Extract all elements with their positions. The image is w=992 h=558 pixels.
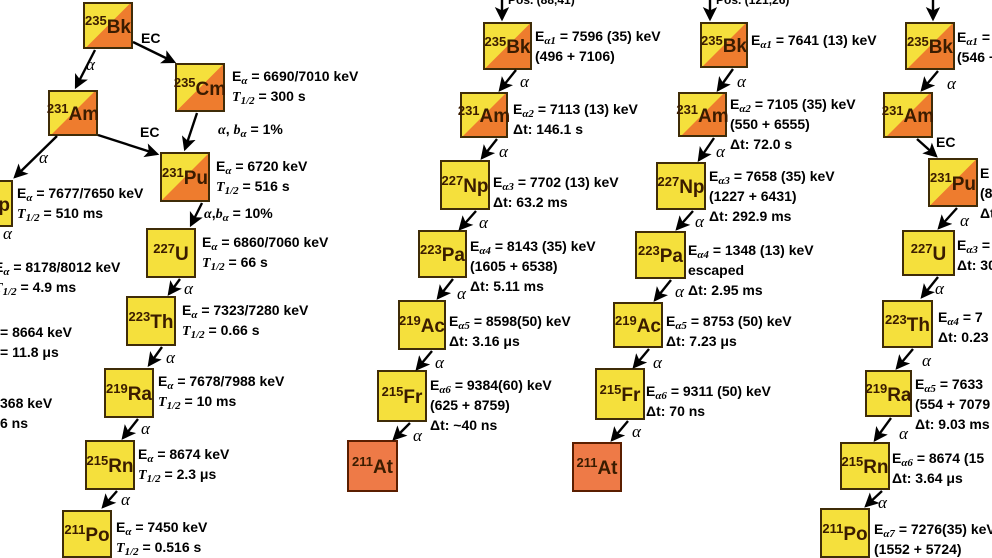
arrow-ac-fr-c2 [417,351,432,369]
label-219ac-left-partial: = 8664 keV= 11.8 μs [0,322,72,362]
mass-number: 227 [657,174,679,189]
arrow-am-np-c2 [482,139,497,158]
arrow-ra-rn-c4 [875,418,891,440]
label-line: (1552 + 5724) [874,539,992,558]
label-223th-c1: Eα = 7323/7280 keVT1/2 = 0.66 s [182,300,308,340]
label-line: Eα = 6690/7010 keV [232,66,358,86]
alpha-label-np-left: α [3,224,12,244]
element-symbol: Np [0,195,10,217]
element-symbol: Am [904,106,935,128]
mass-number: 215 [382,384,404,399]
label-line: Eα = 6860/7060 keV [202,232,328,252]
ec-label-am-pu-c4: EC [936,134,955,150]
element-symbol: Bk [506,37,530,59]
label-line: Eα7 = 7276(35) keV [874,519,992,539]
label-line: (546 + [957,47,992,67]
element-symbol: Rn [108,456,133,478]
arrow-am-pu-c4 [917,139,936,156]
label-227u-c4-partial: Eα3 =Δt: 30 [957,235,992,275]
nuclide-215rn-c4: 215Rn [840,442,890,490]
mass-number: 231 [882,103,904,118]
arrow-pa-ac-c3 [655,280,671,300]
label-227u-c1: Eα = 6860/7060 keVT1/2 = 66 s [202,232,328,272]
label-line: T1/2 = 66 s [202,252,328,272]
decay-chain-diagram: 235Bk235Cm231Am231Pu227U223Th219Ra215Rn2… [0,0,992,558]
element-symbol: Bk [929,37,953,59]
alpha-label-3-c2: α [479,213,488,233]
label-line: (496 + 7106) [535,46,661,66]
label-line: E [980,163,992,183]
label-line: Eα = 7677/7650 keV [17,183,143,203]
element-symbol: Np [679,177,704,199]
alpha-label-ra-rn-c1: α [141,419,150,439]
label-215fr-c3: Eα6 = 9311 (50) keVΔt: 70 ns [646,381,771,421]
nuclide-219ra-c4: 219Ra [865,370,912,417]
arrow-ra-rn-c1 [123,419,138,438]
label-line: Δt: 5.11 ms [470,276,596,296]
label-line: Eα = 8178/8012 keV [0,257,120,277]
label-line: (1605 + 6538) [470,256,596,276]
element-symbol: At [373,457,393,479]
arrow-pu-u-c1 [191,203,202,225]
arrow-pa-ac-c2 [438,279,453,298]
mass-number: 231 [676,102,698,117]
label-231pu-c4-partial: E(8Δt [980,163,992,223]
alpha-label-1-c3: α [737,72,746,92]
label-215fr-c2: Eα6 = 9384(60) keV(625 + 8759)Δt: ~40 ns [430,375,552,435]
label-235bk-c2: Eα1 = 7596 (35) keV(496 + 7106) [535,26,661,66]
mass-number: 231 [458,103,480,118]
element-symbol: Cm [196,79,227,101]
label-line: Δt: 7.23 μs [666,331,792,351]
label-215rn-c1: Eα = 8674 keVT1/2 = 2.3 μs [138,444,229,484]
alpha-label-4-c3: α [675,282,684,302]
mass-number: 219 [106,381,128,396]
mass-number: 211 [576,455,597,470]
label-219ac-c3: Eα5 = 8753 (50) keVΔt: 7.23 μs [666,311,792,351]
mass-number: 231 [47,101,69,116]
element-symbol: Pu [184,168,208,190]
mass-number: 231 [930,170,952,185]
arrow-fr-at-c2 [394,423,410,439]
nuclide-219ra-c1: 219Ra [104,368,154,418]
fragment-pos-c3: Pos. (121,26) [716,0,789,7]
mass-number: 235 [85,13,107,28]
label-line: Eα6 = 8674 (15 [892,448,984,468]
element-symbol: Ra [887,385,911,407]
nuclide-235bk-c3: 235Bk [700,22,748,68]
mass-number: 227 [153,241,175,256]
label-231am-c2: Eα2 = 7113 (13) keVΔt: 146.1 s [513,99,638,139]
branch-label-cm-pu-c1: α, bα = 1% [218,121,283,140]
element-symbol: Bk [107,17,131,39]
alpha-label-u-th-c4: α [935,279,944,299]
nuclide-231am-c3: 231Am [678,92,727,137]
arrow-np-pa-c3 [677,211,693,229]
element-symbol: At [597,458,617,480]
nuclide-223th-c1: 223Th [126,296,176,346]
label-line: Eα = 6720 keV [216,156,307,176]
arrow-bk-am-c4 [922,71,938,90]
label-line: Δt: 2.95 ms [688,280,814,300]
mass-number: 219 [399,313,421,328]
label-line: Eα3 = 7702 (13) keV [493,172,619,192]
label-line: Eα5 = 7633 [915,374,990,394]
arrow-cm-pu-c1 [185,113,197,149]
label-line: Δt: 72.0 s [730,134,856,154]
element-symbol: Am [480,106,511,128]
arrow-u-th-c1 [169,279,180,294]
label-line: Δt: 3.64 μs [892,468,984,488]
mass-number: 223 [638,243,660,258]
mass-number: 215 [86,453,108,468]
label-line: Eα = 7678/7988 keV [158,371,284,391]
label-211po-c1: Eα = 7450 keVT1/2 = 0.516 s [116,517,207,557]
label-line: (625 + 8759) [430,395,552,415]
label-line: T1/2 = 10 ms [158,391,284,411]
alpha-label-am-np-c1: α [39,148,48,168]
mass-number: 231 [162,165,184,180]
mass-number: 211 [64,522,85,537]
nuclide-223th-c4: 223Th [882,300,933,348]
mass-number: 211 [822,521,843,536]
alpha-label-pu-u-c4: α [960,211,969,231]
label-line: Δt: 70 ns [646,401,771,421]
element-symbol: U [175,244,189,266]
element-symbol: Am [69,104,100,126]
label-line: Eα1 = 7641 (13) keV [751,30,877,50]
mass-number: 227 [441,173,463,188]
branch-label-pu-u-c1: α,bα = 10% [204,205,273,224]
element-symbol: Pu [952,174,976,196]
mass-number: 211 [352,454,373,469]
label-line: T1/2 = 0.66 s [182,320,308,340]
label-line: Eα4 = 8143 (35) keV [470,236,596,256]
mass-number: 235 [174,75,196,90]
alpha-label-3-c3: α [695,212,704,232]
label-line: Eα4 = 7 [938,307,989,327]
ec-label-am-pu-c1: EC [140,124,159,140]
nuclide-211po-c4: 211Po [820,508,870,558]
label-227np-c2: Eα3 = 7702 (13) keVΔt: 63.2 ms [493,172,619,212]
label-line: Δt: 9.03 ms [915,414,990,434]
nuclide-231pu-c4: 231Pu [928,158,978,207]
label-line: T1/2 = 0.516 s [116,537,207,557]
alpha-label-1-c2: α [520,72,529,92]
arrow-ac-fr-c3 [634,349,649,367]
alpha-label-ra-rn-c4: α [899,424,908,444]
nuclide-235bk-c4: 235Bk [905,22,955,70]
label-line: Eα5 = 8598(50) keV [449,311,571,331]
arrow-am-np-c3 [699,138,714,160]
element-symbol: Bk [723,36,747,58]
alpha-label-1-c4: α [947,74,956,94]
mass-number: 219 [615,313,637,328]
label-line: Eα2 = 7113 (13) keV [513,99,638,119]
element-symbol: Np [463,176,488,198]
nuclide-211po-c1: 211Po [62,510,112,558]
mass-number: 223 [420,242,442,257]
label-211po-c4-partial: Eα7 = 7276(35) keV(1552 + 5724) [874,519,992,558]
arrow-rn-po-c1 [103,491,117,507]
element-symbol: Rn [863,457,888,479]
label-line: Δt: ~40 ns [430,415,552,435]
element-symbol: Ra [128,384,152,406]
mass-number: 235 [907,34,929,49]
label-line: escaped [688,260,814,280]
alpha-label-2-c3: α [716,142,725,162]
element-symbol: Pa [660,246,683,268]
alpha-label-rn-po-c1: α [121,490,130,510]
alpha-label-6-c3: α [632,422,641,442]
label-219ac-c2: Eα5 = 8598(50) keVΔt: 3.16 μs [449,311,571,351]
label-line: T1/2 = 516 s [216,176,307,196]
element-symbol: Fr [403,387,422,409]
label-line: (554 + 7079 [915,394,990,414]
label-line: (550 + 6555) [730,114,856,134]
element-symbol: Fr [621,385,640,407]
label-line: 6 ns [0,413,52,433]
nuclide-231am-c2: 231Am [460,92,508,138]
label-line: (1227 + 6431) [709,186,835,206]
label-223pa-c2: Eα4 = 8143 (35) keV(1605 + 6538)Δt: 5.11… [470,236,596,296]
label-215fr-left-partial: 368 keV6 ns [0,393,52,433]
nuclide-223pa-c2: 223Pa [418,230,467,278]
label-219ra-c1: Eα = 7678/7988 keVT1/2 = 10 ms [158,371,284,411]
alpha-label-6-c2: α [413,426,422,446]
label-line: = 11.8 μs [0,342,72,362]
nuclide-227np-left-partial: 227Np [0,180,13,227]
mass-number: 227 [911,241,933,256]
nuclide-235cm-c1: 235Cm [175,63,225,112]
label-219ra-c4-partial: Eα5 = 7633(554 + 7079Δt: 9.03 ms [915,374,990,434]
label-line: Δt: 63.2 ms [493,192,619,212]
nuclide-227u-c1: 227U [146,228,196,278]
label-227np-c3: Eα3 = 7658 (35) keV(1227 + 6431)Δt: 292.… [709,166,835,226]
alpha-label-4-c2: α [457,284,466,304]
label-line: 368 keV [0,393,52,413]
nuclide-219ac-c2: 219Ac [398,300,446,350]
label-215rn-c4-partial: Eα6 = 8674 (15Δt: 3.64 μs [892,448,984,488]
nuclide-219ac-c3: 219Ac [613,302,663,348]
nuclide-215fr-c3: 215Fr [595,368,645,420]
label-line: Δt [980,203,992,223]
label-line: Δt: 30 [957,255,992,275]
alpha-label-bk-am-c1: α [86,55,95,75]
label-223pa-c3: Eα4 = 1348 (13) keVescapedΔt: 2.95 ms [688,240,814,300]
alpha-label-th-ra-c4: α [922,351,931,371]
mass-number: 215 [841,454,863,469]
nuclide-223pa-c3: 223Pa [635,231,686,279]
arrow-bk-am-c2 [500,70,516,90]
label-line: Δt: 146.1 s [513,119,638,139]
element-symbol: Ac [421,316,445,338]
label-line: Eα2 = 7105 (35) keV [730,94,856,114]
arrow-np-pa-c2 [460,211,476,229]
label-235bk-c3: Eα1 = 7641 (13) keV [751,30,877,50]
arrow-th-ra-c1 [149,347,162,365]
element-symbol: Th [907,315,930,337]
label-223pa-left-partial: Eα = 8178/8012 keVT1/2 = 4.9 ms [0,257,120,297]
arrow-bk-am-c3 [718,69,733,90]
label-line: Eα1 = 7596 (35) keV [535,26,661,46]
alpha-label-5-c2: α [435,353,444,373]
arrow-am-np-c1 [15,136,57,177]
ec-label-bk-cm-c1: EC [141,30,160,46]
element-symbol: Po [843,524,867,546]
element-symbol: Pa [442,245,465,267]
nuclide-215rn-c1: 215Rn [85,440,135,490]
nuclide-227u-c4: 227U [902,230,955,276]
label-line: Eα6 = 9311 (50) keV [646,381,771,401]
label-line: Eα3 = [957,235,992,255]
label-line: Eα3 = 7658 (35) keV [709,166,835,186]
element-symbol: Ac [637,316,661,338]
label-line: T1/2 = 2.3 μs [138,464,229,484]
label-line: Eα4 = 1348 (13) keV [688,240,814,260]
alpha-label-2-c2: α [499,142,508,162]
label-line: Eα = 7323/7280 keV [182,300,308,320]
nuclide-227np-c3: 227Np [656,162,706,210]
mass-number: 235 [701,33,723,48]
arrow-fr-at-c3 [612,421,628,440]
label-line: Eα6 = 9384(60) keV [430,375,552,395]
label-line: Δt: 292.9 ms [709,206,835,226]
label-231pu-c1: Eα = 6720 keVT1/2 = 516 s [216,156,307,196]
alpha-label-th-ra-c1: α [166,348,175,368]
element-symbol: Po [85,525,109,547]
label-227np-left: Eα = 7677/7650 keVT1/2 = 510 ms [17,183,143,223]
nuclide-235bk-c2: 235Bk [483,22,532,70]
label-line: (8 [980,183,992,203]
label-line: Δt: 3.16 μs [449,331,571,351]
label-line: Δt: 0.23 [938,327,989,347]
nuclide-211at-c3: 211At [572,442,622,492]
element-symbol: Th [150,312,173,334]
label-line: T1/2 = 4.9 ms [0,277,120,297]
nuclide-231am-c4: 231Am [883,92,933,138]
mass-number: 223 [885,312,907,327]
label-line: Eα = 8674 keV [138,444,229,464]
nuclide-227np-c2: 227Np [440,160,490,210]
label-235cm-c1: Eα = 6690/7010 keVT1/2 = 300 s [232,66,358,106]
arrow-th-ra-c4 [897,349,913,368]
label-235bk-c4-partial: Eα1 =(546 + [957,27,992,67]
alpha-label-rn-po-c4: α [878,493,887,513]
label-line: Eα = 7450 keV [116,517,207,537]
nuclide-215fr-c2: 215Fr [377,370,427,422]
label-line: = 8664 keV [0,322,72,342]
label-line: Eα1 = [957,27,992,47]
label-line: T1/2 = 510 ms [17,203,143,223]
label-line: Eα5 = 8753 (50) keV [666,311,792,331]
mass-number: 219 [866,381,888,396]
fragment-pos-c2: Pos. (88,41) [508,0,575,7]
element-symbol: U [932,244,946,266]
mass-number: 215 [600,382,622,397]
nuclide-235bk-c1: 235Bk [83,2,133,49]
mass-number: 223 [129,309,151,324]
alpha-label-u-th-c1: α [184,279,193,299]
nuclide-211at-c2: 211At [347,440,398,492]
label-231am-c3: Eα2 = 7105 (35) keV(550 + 6555)Δt: 72.0 … [730,94,856,154]
nuclide-231pu-c1: 231Pu [160,152,210,202]
element-symbol: Am [698,106,729,128]
alpha-label-5-c3: α [653,353,662,373]
label-line: T1/2 = 300 s [232,86,358,106]
label-223th-c4-partial: Eα4 = 7Δt: 0.23 [938,307,989,347]
mass-number: 235 [485,34,507,49]
arrow-pu-u-c4 [939,208,957,228]
nuclide-231am-c1: 231Am [48,90,98,136]
